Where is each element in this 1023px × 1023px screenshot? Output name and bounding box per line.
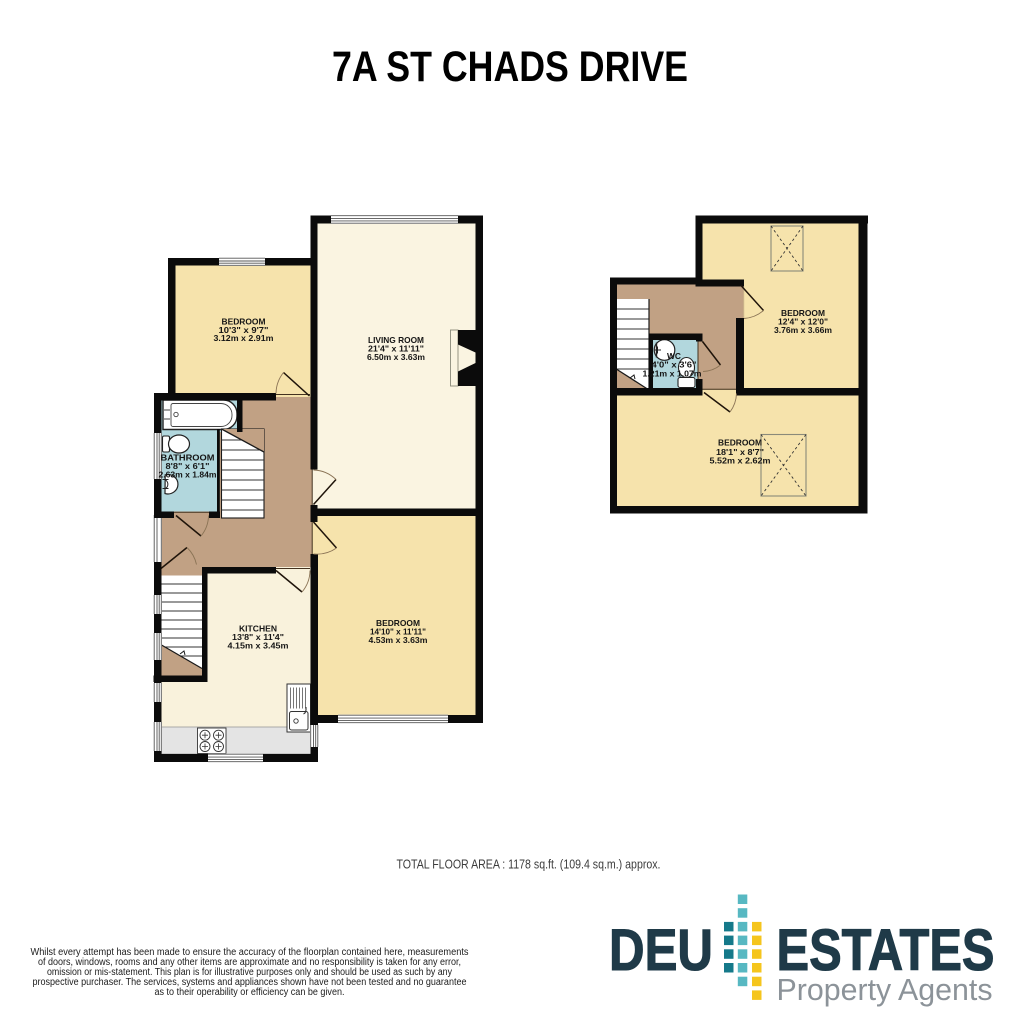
svg-text:4.53m x 3.63m: 4.53m x 3.63m bbox=[369, 635, 428, 645]
svg-text:3.76m x 3.66m: 3.76m x 3.66m bbox=[774, 325, 832, 335]
svg-text:4.15m x 3.45m: 4.15m x 3.45m bbox=[228, 640, 289, 650]
svg-text:7A ST CHADS DRIVE: 7A ST CHADS DRIVE bbox=[332, 43, 688, 91]
svg-text:Property Agents: Property Agents bbox=[777, 973, 993, 1007]
svg-text:TOTAL FLOOR AREA : 1178 sq.ft.: TOTAL FLOOR AREA : 1178 sq.ft. (109.4 sq… bbox=[397, 858, 661, 872]
svg-text:DEU: DEU bbox=[609, 918, 713, 983]
svg-text:5.52m x 2.62m: 5.52m x 2.62m bbox=[710, 455, 771, 465]
svg-text:as to their operability or eff: as to their operability or efficiency ca… bbox=[155, 987, 345, 998]
svg-text:3.12m x 2.91m: 3.12m x 2.91m bbox=[214, 333, 274, 343]
svg-text:1.21m x 1.07m: 1.21m x 1.07m bbox=[643, 368, 702, 378]
svg-text:2.63m x 1.84m: 2.63m x 1.84m bbox=[159, 470, 217, 480]
svg-text:6.50m x 3.63m: 6.50m x 3.63m bbox=[367, 352, 425, 362]
